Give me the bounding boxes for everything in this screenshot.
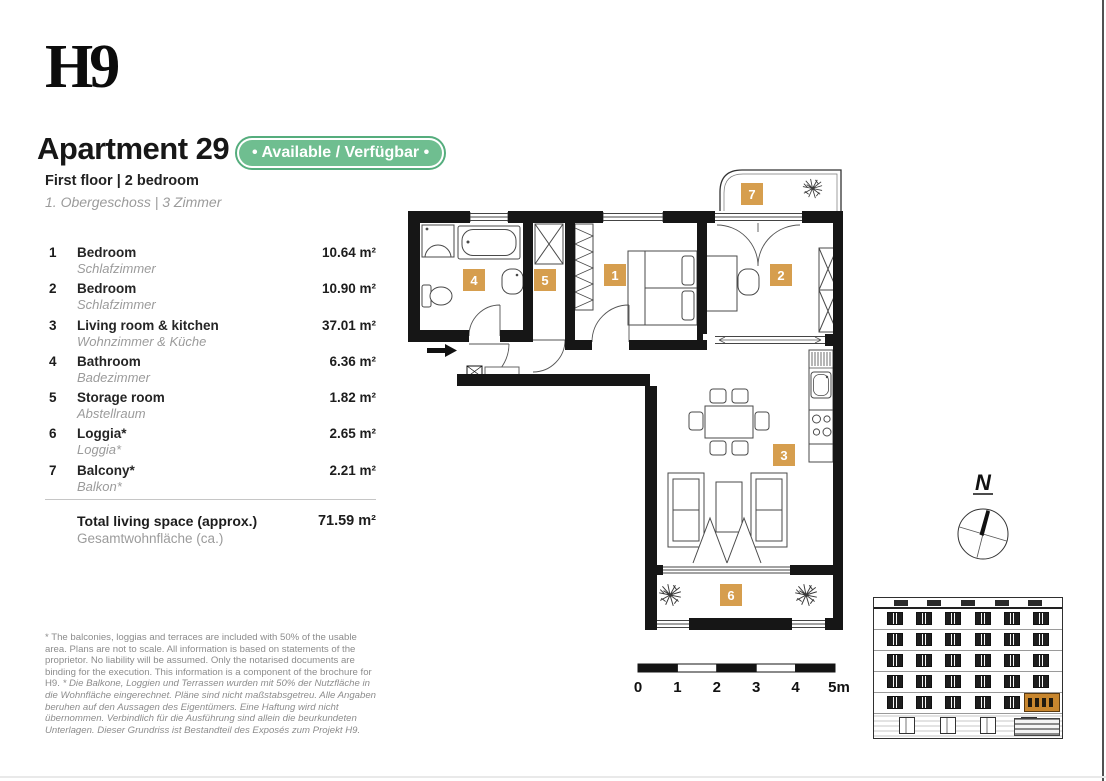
elevation-window	[1004, 654, 1020, 667]
room-name-english: Bedroom	[77, 281, 322, 296]
room-row: 4BathroomBadezimmer6.36 m²	[45, 354, 376, 390]
elevation-row	[874, 609, 1062, 630]
elevation-window	[995, 600, 1009, 606]
total-spacer	[45, 513, 77, 547]
plant-icon	[659, 584, 681, 606]
footnote: * The balconies, loggias and terraces ar…	[45, 632, 379, 736]
elevation-window	[887, 696, 903, 709]
unit-highlight-windows	[1028, 698, 1056, 707]
room-area-value: 1.82 m²	[329, 390, 376, 426]
elevation-row	[874, 651, 1062, 672]
room-number: 4	[45, 354, 77, 390]
room-list: 1BedroomSchlafzimmer10.64 m²2BedroomSchl…	[45, 245, 376, 499]
elevation-window	[975, 633, 991, 646]
elevation-window	[916, 696, 932, 709]
elevation-window	[894, 600, 908, 606]
toilet-icon	[422, 285, 452, 307]
room-badge-4: 4	[463, 269, 485, 291]
room-area-value: 6.36 m²	[329, 354, 376, 390]
elevation-window	[916, 654, 932, 667]
room-name-german: Schlafzimmer	[77, 297, 322, 312]
elevation-window	[927, 600, 941, 606]
list-divider	[45, 499, 376, 500]
room-name-english: Storage room	[77, 390, 329, 405]
h9-logo: H9	[45, 36, 116, 98]
elevation-window	[940, 717, 956, 734]
svg-text:3: 3	[752, 679, 760, 696]
room-names: BedroomSchlafzimmer	[77, 245, 322, 281]
scale-bar: 0 1 2 3 4 5m	[630, 652, 860, 698]
washbasin-icon	[502, 269, 523, 294]
elevation-window	[1004, 612, 1020, 625]
svg-text:2: 2	[713, 679, 721, 696]
floor-plan: 1 2 3 4 5 6 7	[405, 160, 845, 632]
room-number: 7	[45, 463, 77, 499]
elevation-window	[1028, 600, 1042, 606]
garage-door	[1014, 718, 1060, 736]
room-name-english: Bedroom	[77, 245, 322, 260]
elevation-window	[887, 612, 903, 625]
room-name-english: Loggia*	[77, 426, 329, 441]
room-number: 2	[45, 281, 77, 317]
desk-chair-icon	[702, 256, 759, 311]
room-name-english: Balcony*	[77, 463, 329, 478]
room-name-german: Balkon*	[77, 479, 329, 494]
svg-text:5m: 5m	[828, 679, 850, 696]
footnote-german: * Die Balkone, Loggien und Terrassen wur…	[45, 678, 376, 735]
north-compass: N	[940, 466, 1030, 576]
elevation-window	[887, 633, 903, 646]
elevation-row	[874, 630, 1062, 651]
elevation-window	[945, 675, 961, 688]
elevation-window	[887, 654, 903, 667]
subtitle-english: First floor | 2 bedroom	[45, 173, 199, 189]
room-name-english: Living room & kitchen	[77, 318, 322, 333]
room-badge-2: 2	[770, 264, 792, 286]
elevation-window	[1033, 675, 1049, 688]
room-row: 2BedroomSchlafzimmer10.90 m²	[45, 281, 376, 317]
balcony-outline	[720, 170, 841, 211]
room-area-value: 10.90 m²	[322, 281, 376, 317]
plant-icon	[795, 584, 817, 606]
room-badge-6: 6	[720, 584, 742, 606]
total-row: Total living space (approx.) Gesamtwohnf…	[45, 513, 376, 547]
building-elevation	[873, 597, 1063, 739]
elevation-window	[961, 600, 975, 606]
room-badge-7: 7	[741, 183, 763, 205]
room-area-value: 37.01 m²	[322, 318, 376, 354]
room-badge-3: 3	[773, 444, 795, 466]
total-area-value: 71.59 m²	[318, 513, 376, 547]
room-number: 3	[45, 318, 77, 354]
elevation-window	[916, 612, 932, 625]
room-row: 7Balcony*Balkon*2.21 m²	[45, 463, 376, 499]
elevation-window	[1004, 633, 1020, 646]
elevation-window	[899, 717, 915, 734]
sofa-group-icon	[668, 473, 787, 547]
page-title: Apartment 29	[37, 131, 229, 167]
plan-furniture	[422, 179, 837, 606]
elevation-window	[975, 654, 991, 667]
svg-text:3: 3	[780, 448, 787, 463]
room-names: Loggia*Loggia*	[77, 426, 329, 462]
svg-text:6: 6	[727, 588, 734, 603]
elevation-window	[1004, 696, 1020, 709]
entry-arrow-icon	[427, 344, 457, 357]
shower-icon	[422, 225, 454, 257]
room-badge-1: 1	[604, 264, 626, 286]
double-bed-icon	[628, 251, 697, 325]
elevation-window	[980, 717, 996, 734]
room-number: 6	[45, 426, 77, 462]
elevation-window	[945, 654, 961, 667]
room-area-value: 10.64 m²	[322, 245, 376, 281]
room-number: 5	[45, 390, 77, 426]
elevation-window	[1004, 675, 1020, 688]
elevation-window	[945, 633, 961, 646]
room-name-german: Schlafzimmer	[77, 261, 322, 276]
total-label-german: Gesamtwohnfläche (ca.)	[77, 530, 318, 547]
elevation-window	[1033, 654, 1049, 667]
svg-text:5: 5	[541, 273, 548, 288]
kitchen-counter-icon	[809, 350, 833, 462]
room-name-german: Wohnzimmer & Küche	[77, 334, 322, 349]
room-number: 1	[45, 245, 77, 281]
room-names: BedroomSchlafzimmer	[77, 281, 322, 317]
room-names: Living room & kitchenWohnzimmer & Küche	[77, 318, 322, 354]
elevation-window	[916, 633, 932, 646]
plant-icon	[803, 179, 822, 198]
room-names: BathroomBadezimmer	[77, 354, 329, 390]
unit-highlight	[1024, 693, 1060, 712]
elevation-window	[887, 675, 903, 688]
svg-text:4: 4	[470, 273, 478, 288]
compass-needle	[980, 510, 991, 536]
room-area-value: 2.65 m²	[329, 426, 376, 462]
room-name-german: Abstellraum	[77, 406, 329, 421]
room-name-german: Loggia*	[77, 442, 329, 457]
svg-text:1: 1	[611, 268, 618, 283]
elevation-window	[1033, 612, 1049, 625]
room-area-value: 2.21 m²	[329, 463, 376, 499]
elevation-row	[874, 598, 1062, 609]
room-row: 3Living room & kitchenWohnzimmer & Küche…	[45, 318, 376, 354]
room-row: 6Loggia*Loggia*2.65 m²	[45, 426, 376, 462]
elevation-row	[874, 672, 1062, 693]
total-label: Total living space (approx.)	[77, 513, 318, 530]
subtitle-german: 1. Obergeschoss | 3 Zimmer	[45, 194, 221, 210]
page-bottom-edge	[0, 776, 1106, 778]
room-name-german: Badezimmer	[77, 370, 329, 385]
dining-table-icon	[689, 389, 769, 455]
svg-text:7: 7	[748, 187, 755, 202]
elevation-window	[975, 612, 991, 625]
svg-text:2: 2	[777, 268, 784, 283]
room-names: Storage roomAbstellraum	[77, 390, 329, 426]
elevation-window	[975, 696, 991, 709]
elevation-window	[945, 696, 961, 709]
room-row: 1BedroomSchlafzimmer10.64 m²	[45, 245, 376, 281]
elevation-window	[975, 675, 991, 688]
room-badge-5: 5	[534, 269, 556, 291]
room-row: 5Storage roomAbstellraum1.82 m²	[45, 390, 376, 426]
svg-text:1: 1	[673, 679, 681, 696]
elevation-window	[1033, 633, 1049, 646]
room-name-english: Bathroom	[77, 354, 329, 369]
elevation-window	[916, 675, 932, 688]
elevation-window	[945, 612, 961, 625]
closet-hatch-icon	[575, 224, 593, 310]
bathtub-icon	[458, 226, 520, 259]
svg-text:4: 4	[791, 679, 800, 696]
page-right-edge	[1102, 0, 1104, 781]
svg-text:0: 0	[634, 679, 642, 696]
room-names: Balcony*Balkon*	[77, 463, 329, 499]
storage-wardrobe-icon	[535, 224, 563, 264]
svg-text:N: N	[975, 470, 992, 495]
